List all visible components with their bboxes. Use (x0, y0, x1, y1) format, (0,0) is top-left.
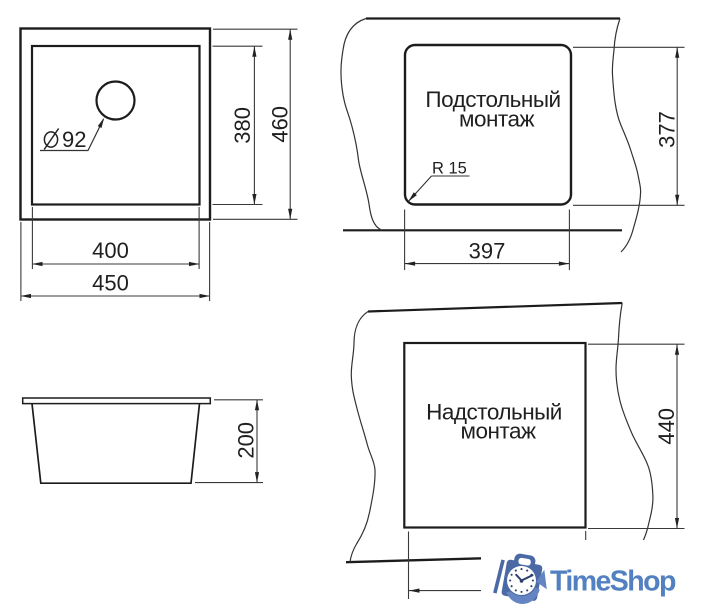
svg-text:400: 400 (92, 238, 129, 263)
svg-text:450: 450 (92, 270, 129, 295)
svg-text:460: 460 (268, 106, 293, 143)
svg-text:380: 380 (230, 107, 255, 144)
svg-text:440: 440 (654, 408, 679, 445)
svg-text:397: 397 (469, 239, 506, 264)
svg-text:TimeShop: TimeShop (550, 566, 676, 598)
svg-text:монтаж: монтаж (459, 107, 534, 132)
svg-text:200: 200 (233, 422, 258, 459)
svg-text:R 15: R 15 (432, 160, 467, 178)
svg-text:92: 92 (62, 127, 86, 152)
svg-text:377: 377 (654, 111, 679, 148)
svg-text:монтаж: монтаж (460, 419, 535, 444)
